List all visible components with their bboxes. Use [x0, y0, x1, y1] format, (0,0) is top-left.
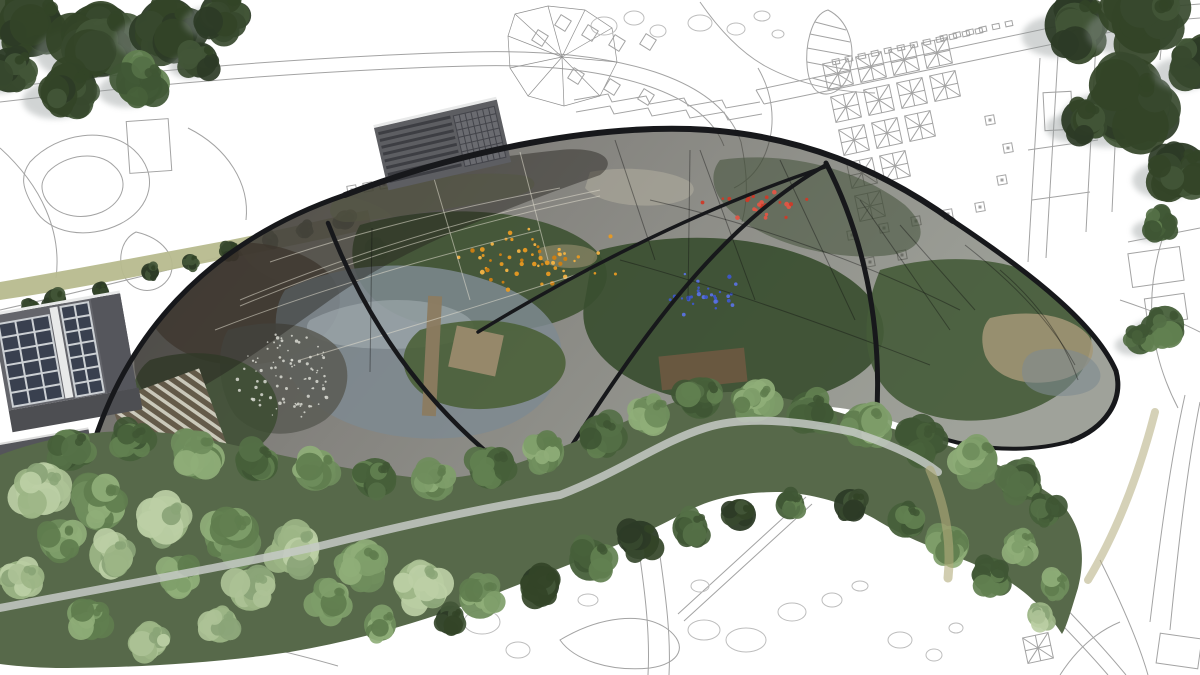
bird-dot: [731, 303, 735, 307]
canopy-lobe: [676, 382, 701, 407]
solar-panel: [75, 303, 89, 316]
canopy-highlight: [93, 609, 101, 617]
pebble: [259, 404, 262, 407]
solar-panel: [73, 370, 87, 383]
bird-dot: [682, 313, 686, 317]
bird-dot: [577, 255, 580, 258]
canopy-highlight: [858, 494, 864, 500]
pebble: [243, 368, 245, 370]
pebble: [325, 396, 329, 400]
canopy-highlight: [1079, 0, 1091, 12]
canopy-highlight: [323, 455, 331, 463]
bird-dot: [764, 216, 768, 220]
canopy-lobe: [480, 457, 495, 472]
pebble: [312, 369, 314, 371]
bird-dot: [485, 268, 489, 272]
pebble: [282, 398, 285, 401]
pebble: [307, 395, 310, 398]
canopy-lobe: [93, 288, 100, 295]
canopy-highlight: [452, 611, 458, 617]
bird-dot: [594, 272, 597, 275]
pebble: [297, 402, 300, 405]
bird-dot: [470, 248, 475, 253]
pebble: [290, 377, 292, 379]
bird-dot: [514, 272, 518, 276]
solar-panel: [24, 361, 41, 375]
canopy-lobe: [1003, 481, 1027, 505]
canopy-lobe: [207, 609, 222, 624]
pebble: [278, 401, 282, 405]
bird-dot: [727, 275, 731, 279]
pebble: [276, 408, 278, 410]
canopy-highlight: [760, 390, 768, 398]
pebble: [251, 398, 254, 401]
bird-dot: [573, 260, 575, 262]
solar-panel: [87, 367, 101, 380]
canopy-highlight: [34, 302, 38, 306]
solar-panel: [16, 319, 33, 333]
bird-dot: [608, 234, 612, 238]
bird-dot: [563, 252, 566, 255]
bird-dot: [538, 250, 541, 253]
bird-dot: [687, 297, 691, 301]
pebble: [304, 378, 306, 380]
canopy-highlight: [107, 14, 122, 29]
bird-dot: [722, 197, 725, 200]
bird-dot: [789, 202, 793, 206]
pebble: [276, 336, 280, 340]
solar-panel: [71, 357, 85, 370]
bird-dot: [692, 303, 694, 305]
canopy-lobe: [535, 450, 549, 464]
canopy-lobe: [47, 88, 67, 108]
canopy-lobe: [580, 427, 602, 449]
solar-panel: [78, 316, 92, 329]
bird-dot: [541, 263, 544, 266]
pebble: [300, 416, 302, 418]
canopy-lobe: [221, 568, 251, 598]
bird-dot: [558, 252, 562, 256]
pebble: [280, 375, 283, 378]
pebble: [312, 387, 314, 389]
solar-panel: [40, 358, 57, 372]
canopy-lobe: [371, 619, 389, 637]
canopy-highlight: [551, 437, 559, 445]
canopy-highlight: [138, 427, 146, 435]
canopy-lobe: [484, 591, 506, 613]
pebble: [308, 377, 311, 380]
canopy-lobe: [1074, 125, 1094, 145]
canopy-highlight: [1155, 0, 1168, 13]
solar-panel: [45, 385, 62, 399]
canopy-highlight: [428, 570, 438, 580]
pebble: [281, 339, 284, 342]
bird-dot: [710, 293, 713, 296]
bird-dot: [517, 249, 521, 253]
bird-dot: [727, 299, 731, 303]
canopy-highlight: [796, 494, 802, 500]
bird-dot: [734, 282, 738, 286]
solar-panel: [62, 306, 76, 319]
pebble: [303, 411, 305, 413]
canopy-highlight: [1142, 329, 1148, 335]
bird-dot: [520, 262, 524, 266]
canopy-highlight: [264, 450, 272, 458]
bird-dot: [697, 286, 700, 289]
pebble: [321, 367, 323, 369]
bird-dot: [489, 278, 493, 282]
canopy-lobe: [220, 241, 231, 252]
pebble: [256, 380, 259, 383]
bird-dot: [697, 292, 701, 296]
bird-dot: [805, 198, 808, 201]
pebble: [252, 360, 254, 362]
canopy-lobe: [734, 397, 750, 413]
bird-dot: [532, 262, 537, 267]
bird-dot: [614, 273, 617, 276]
bird-dot: [752, 207, 756, 211]
bird-dot: [545, 260, 550, 265]
pebble: [279, 356, 282, 359]
pebble: [285, 387, 288, 390]
pebble: [272, 414, 273, 415]
bird-dot: [537, 245, 540, 248]
canopy-highlight: [1091, 106, 1099, 114]
bird-dot: [701, 201, 705, 205]
canopy-lobe: [26, 13, 49, 36]
pebble: [295, 339, 298, 342]
bird-dot: [533, 243, 536, 246]
canopy-lobe: [197, 57, 221, 81]
canopy-highlight: [655, 400, 663, 408]
pebble: [300, 403, 303, 406]
pebble: [289, 362, 292, 365]
pebble: [291, 359, 294, 362]
pebble: [255, 361, 257, 363]
solar-panel: [21, 347, 38, 361]
bird-dot: [553, 266, 557, 270]
canopy-lobe: [1142, 220, 1162, 240]
pebble: [323, 375, 325, 377]
solar-panel: [66, 331, 80, 344]
canopy-lobe: [86, 510, 105, 529]
bird-dot: [478, 256, 482, 260]
canopy-highlight: [1042, 606, 1047, 611]
canopy-highlight: [65, 527, 73, 535]
bird-dot: [779, 201, 782, 204]
canopy-highlight: [381, 465, 389, 473]
canopy-highlight: [597, 544, 605, 552]
canopy-lobe: [71, 599, 94, 622]
bird-dot: [489, 259, 492, 262]
bird-dot: [681, 297, 683, 299]
solar-panel: [64, 319, 78, 332]
canopy-lobe: [975, 554, 994, 573]
pebble: [255, 370, 256, 371]
bird-dot: [551, 261, 555, 265]
pebble: [275, 375, 276, 376]
plan-tick-dot: [1007, 147, 1009, 149]
bird-dot: [508, 256, 512, 260]
canopy-highlight: [489, 583, 497, 591]
solar-panel: [7, 364, 24, 378]
bird-dot: [558, 248, 561, 251]
bird-dot: [772, 190, 777, 195]
bird-dot: [563, 257, 567, 261]
canopy-highlight: [226, 611, 233, 618]
solar-panel: [36, 330, 53, 344]
solar-panel: [9, 377, 26, 391]
solar-panel: [89, 380, 103, 393]
canopy-lobe: [1148, 155, 1171, 178]
canopy-lobe: [843, 499, 865, 521]
pebble: [280, 337, 282, 339]
canopy-highlight: [438, 465, 446, 473]
solar-panel: [2, 336, 19, 350]
canopy-highlight: [608, 423, 616, 431]
pebble: [322, 356, 325, 359]
solar-panel: [19, 333, 36, 347]
pebble: [317, 346, 319, 348]
bird-dot: [500, 262, 504, 266]
bird-dot: [558, 262, 562, 266]
pebble: [293, 405, 296, 408]
pebble: [277, 347, 279, 349]
canopy-lobe: [459, 578, 483, 602]
bird-dot: [499, 253, 502, 256]
bird-dot: [531, 253, 534, 256]
bird-dot: [719, 291, 721, 293]
bird-dot: [528, 228, 531, 231]
canopy-lobe: [341, 557, 361, 577]
canopy-lobe: [176, 578, 191, 593]
render-canvas: [0, 0, 1200, 675]
canopy-highlight: [152, 265, 156, 269]
canopy-highlight: [149, 64, 159, 74]
canopy-lobe: [61, 434, 91, 464]
canopy-highlight: [28, 567, 36, 575]
pebble: [295, 403, 296, 404]
pebble: [291, 366, 293, 368]
canopy-lobe: [1089, 59, 1141, 111]
canopy-lobe: [296, 453, 324, 481]
solar-panel: [26, 374, 43, 388]
bird-dot: [765, 213, 768, 216]
pebble: [276, 385, 279, 388]
canopy-highlight: [386, 612, 392, 618]
canopy-highlight: [152, 630, 159, 637]
pebble: [316, 372, 318, 374]
pebble: [325, 381, 327, 383]
bird-dot: [538, 256, 542, 260]
pebble: [266, 348, 268, 350]
canopy-lobe: [973, 575, 995, 597]
canopy-lobe: [177, 40, 202, 65]
canopy-lobe: [20, 472, 42, 494]
pebble: [267, 341, 269, 343]
canopy-lobe: [1132, 330, 1143, 341]
bird-dot: [757, 202, 761, 206]
bird-dot: [505, 269, 508, 272]
bird-dot: [713, 300, 717, 304]
bird-dot: [713, 295, 716, 298]
pebble: [273, 362, 274, 363]
canopy-highlight: [1022, 533, 1028, 539]
bird-dot: [715, 307, 718, 310]
bird-dot: [552, 255, 556, 259]
pebble: [274, 366, 277, 369]
canopy-lobe: [174, 450, 199, 475]
canopy-highlight: [58, 291, 62, 295]
bird-dot: [546, 272, 551, 277]
canopy-highlight: [49, 476, 59, 486]
bird-dot: [506, 287, 510, 291]
plan-tick-dot: [989, 119, 991, 121]
pebble: [321, 355, 323, 357]
canopy-highlight: [170, 504, 180, 514]
canopy-highlight: [118, 541, 126, 549]
bird-dot: [508, 231, 513, 236]
canopy-highlight: [301, 533, 311, 543]
bird-dot: [784, 216, 787, 219]
canopy-lobe: [785, 506, 796, 517]
canopy-highlight: [985, 445, 994, 454]
bird-dot: [697, 289, 700, 292]
canopy-lobe: [1171, 46, 1192, 67]
bird-dot: [596, 251, 600, 255]
solar-panel: [68, 344, 82, 357]
pebble: [273, 341, 275, 343]
canopy-highlight: [335, 587, 343, 595]
bird-dot: [726, 294, 730, 298]
solar-panel: [5, 350, 22, 364]
pebble: [238, 389, 241, 392]
pebble: [247, 355, 249, 357]
canopy-highlight: [993, 561, 1000, 568]
plan-tick-dot: [979, 206, 981, 208]
canopy-highlight: [259, 576, 267, 584]
solar-panel: [12, 391, 29, 405]
solar-panel: [43, 371, 60, 385]
bird-dot: [523, 248, 528, 253]
canopy-lobe: [60, 539, 79, 558]
canopy-highlight: [953, 530, 961, 538]
canopy-lobe: [1011, 541, 1023, 553]
canopy-lobe: [443, 615, 462, 634]
canopy-highlight: [548, 572, 556, 580]
canopy-highlight: [241, 516, 251, 526]
canopy-highlight: [75, 438, 83, 446]
bird-dot: [735, 215, 740, 220]
canopy-highlight: [202, 438, 211, 447]
pebble: [259, 399, 261, 401]
pebble: [315, 380, 318, 383]
pebble: [297, 388, 298, 389]
canopy-lobe: [1045, 495, 1067, 517]
canopy-lobe: [1153, 314, 1167, 328]
pebble: [254, 386, 257, 389]
pebble: [322, 384, 324, 386]
canopy-highlight: [191, 257, 194, 260]
bird-dot: [480, 270, 485, 275]
canopy-lobe: [126, 87, 148, 109]
pebble: [322, 387, 325, 390]
bird-dot: [727, 197, 731, 201]
canopy-highlight: [1167, 216, 1173, 222]
canopy-highlight: [644, 525, 652, 533]
canopy-highlight: [1052, 499, 1058, 505]
canopy-highlight: [110, 485, 120, 495]
architectural-render: [0, 0, 1200, 675]
plan-tick-dot: [1001, 179, 1003, 181]
canopy-highlight: [1057, 576, 1063, 582]
bird-dot: [704, 295, 708, 299]
solar-panel: [75, 383, 89, 396]
canopy-highlight: [370, 551, 379, 560]
pebble: [291, 335, 293, 337]
canopy-lobe: [157, 634, 170, 647]
canopy-highlight: [101, 285, 104, 288]
solar-panel: [82, 342, 96, 355]
pebble: [269, 396, 272, 399]
canopy-lobe: [393, 573, 413, 593]
canopy-lobe: [1031, 610, 1045, 624]
canopy-highlight: [910, 508, 917, 515]
pebble: [260, 393, 263, 396]
service-building: [0, 290, 142, 432]
canopy-highlight: [1169, 313, 1177, 321]
bird-dot: [510, 238, 513, 241]
canopy-lobe: [193, 7, 223, 37]
bird-dot: [531, 238, 534, 241]
canopy-highlight: [815, 399, 823, 407]
bird-dot: [480, 247, 485, 252]
canopy-highlight: [872, 408, 881, 417]
canopy-highlight: [45, 3, 58, 16]
bird-dot: [690, 295, 693, 298]
bird-dot: [537, 265, 540, 268]
canopy-lobe: [368, 482, 386, 500]
pebble: [236, 378, 239, 381]
pebble: [305, 336, 307, 338]
bird-dot: [684, 273, 686, 275]
solar-panel: [38, 344, 55, 358]
canopy-highlight: [748, 505, 754, 511]
pebble: [257, 357, 259, 359]
canopy-highlight: [698, 514, 705, 521]
canopy-lobe: [616, 518, 641, 543]
pebble: [283, 401, 285, 403]
solar-panel: [84, 354, 98, 367]
canopy-lobe: [37, 524, 61, 548]
canopy-highlight: [708, 381, 716, 389]
bird-dot: [669, 298, 672, 301]
canopy-highlight: [1028, 465, 1036, 473]
solar-panel: [80, 329, 94, 342]
pebble: [287, 350, 289, 352]
bird-dot: [520, 258, 524, 262]
pebble: [317, 370, 319, 372]
pebble: [306, 362, 309, 365]
bird-dot: [562, 270, 565, 273]
canopy-highlight: [494, 453, 502, 461]
pebble: [318, 403, 320, 405]
canopy-lobe: [683, 523, 707, 547]
canopy-lobe: [962, 443, 980, 461]
canopy-highlight: [928, 425, 936, 433]
bird-dot: [765, 195, 769, 199]
canopy-highlight: [74, 72, 85, 83]
